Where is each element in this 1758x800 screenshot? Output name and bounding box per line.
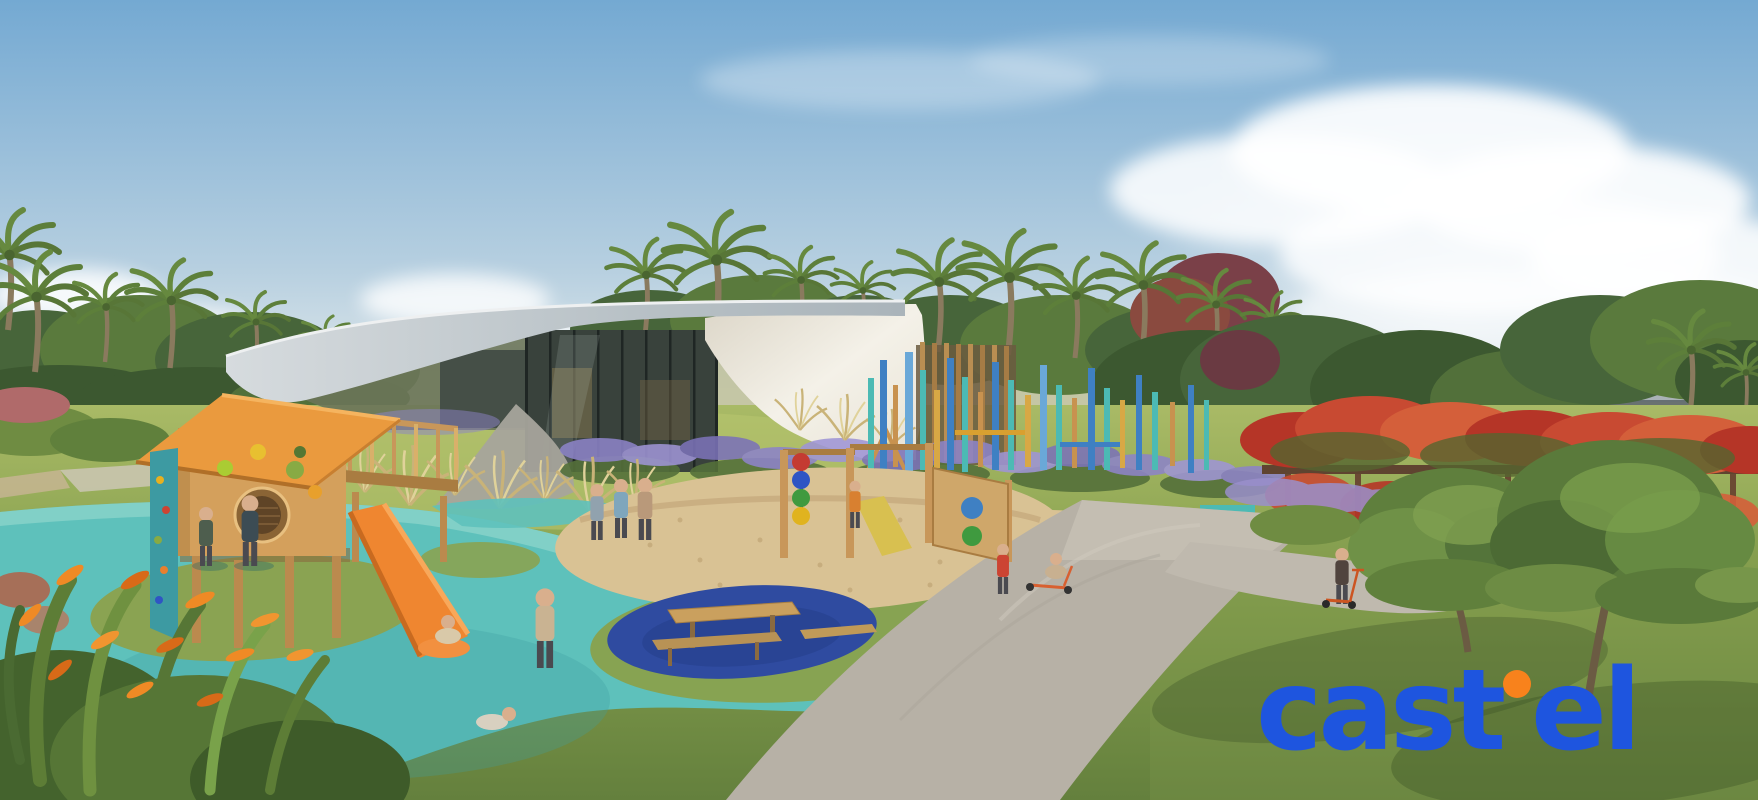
logo-text-left: cast (1256, 646, 1504, 776)
logo-text-right: el (1531, 646, 1637, 776)
climbing-panel (150, 448, 178, 640)
park-rendering: cast el (0, 0, 1758, 800)
castel-watermark-logo: cast el (1256, 646, 1637, 776)
logo-dot-icon (1503, 670, 1531, 698)
